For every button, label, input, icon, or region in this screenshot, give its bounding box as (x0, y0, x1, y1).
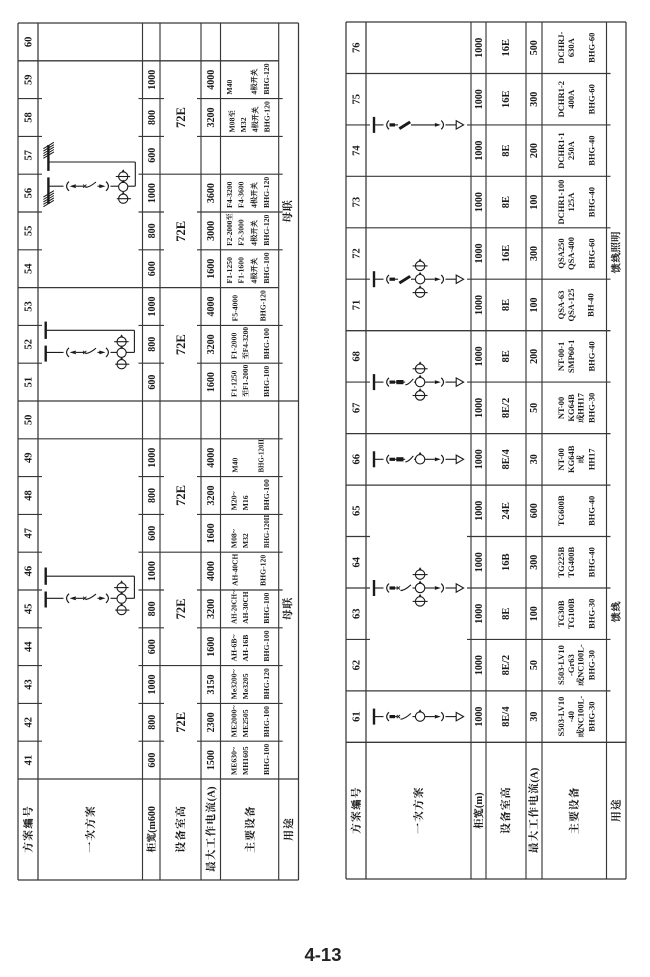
svg-text:QSA-125: QSA-125 (566, 288, 576, 321)
svg-text:100: 100 (529, 606, 540, 621)
svg-text:BHG-60: BHG-60 (587, 84, 597, 114)
svg-text:NT-00-1: NT-00-1 (556, 342, 566, 371)
svg-text:72: 72 (352, 248, 363, 259)
svg-text:16E: 16E (501, 245, 512, 263)
svg-text:BHG-100: BHG-100 (262, 706, 271, 737)
svg-text:MH1605: MH1605 (241, 746, 250, 775)
svg-text:BHG-60: BHG-60 (587, 33, 597, 63)
svg-text:AH-20CH~: AH-20CH~ (231, 590, 238, 624)
svg-text:BHG-120: BHG-120 (262, 63, 271, 94)
svg-text:F5-4000: F5-4000 (231, 295, 240, 322)
svg-text:8E/4: 8E/4 (501, 448, 512, 469)
svg-text:250A: 250A (566, 140, 576, 160)
svg-text:KG64B: KG64B (566, 394, 576, 422)
svg-text:8E: 8E (501, 299, 512, 311)
svg-text:800: 800 (147, 488, 158, 503)
svg-text:4: 4 (250, 242, 259, 246)
svg-text:DCHRJ-: DCHRJ- (556, 31, 566, 63)
svg-text:8E: 8E (501, 350, 512, 362)
svg-text:66: 66 (352, 454, 363, 465)
svg-text:F1-1250: F1-1250 (225, 257, 234, 284)
svg-text:BH-40: BH-40 (586, 293, 596, 317)
svg-text:ME630~: ME630~ (230, 747, 239, 775)
svg-text:1000: 1000 (474, 604, 485, 624)
svg-text:DCHR1-2: DCHR1-2 (556, 81, 566, 117)
svg-text:400A: 400A (566, 89, 576, 109)
svg-text:65: 65 (352, 506, 363, 517)
svg-text:(m600: (m600 (147, 806, 158, 833)
svg-text:3000: 3000 (206, 221, 217, 241)
svg-text:(A): (A) (528, 767, 540, 782)
svg-text:1000: 1000 (474, 346, 485, 366)
svg-text:1000: 1000 (147, 675, 158, 695)
svg-text:63: 63 (352, 608, 363, 619)
svg-text:BHG-30: BHG-30 (587, 650, 597, 680)
svg-text:44: 44 (24, 641, 35, 652)
svg-text:BHG-100: BHG-100 (262, 328, 271, 359)
svg-text:43: 43 (24, 679, 35, 690)
svg-text:1000: 1000 (474, 295, 485, 315)
svg-text:DCHR1-1: DCHR1-1 (556, 132, 566, 168)
svg-text:62: 62 (352, 660, 363, 671)
svg-text:41: 41 (24, 755, 35, 766)
svg-text:8E: 8E (501, 608, 512, 620)
svg-text:4000: 4000 (206, 297, 217, 317)
svg-text:1000: 1000 (147, 70, 158, 90)
svg-text:BHG-40: BHG-40 (587, 496, 597, 526)
svg-text:16E: 16E (501, 90, 512, 108)
svg-text:KG64B: KG64B (566, 445, 576, 473)
svg-text:100: 100 (529, 195, 540, 210)
svg-text:100: 100 (529, 298, 540, 313)
svg-text:45: 45 (24, 604, 35, 615)
svg-text:1500: 1500 (206, 750, 217, 770)
svg-text:Me3200~: Me3200~ (230, 669, 239, 699)
svg-text:BHG-100: BHG-100 (262, 479, 271, 510)
svg-text:BHG-120: BHG-120 (259, 290, 268, 321)
svg-text:F4-3200: F4-3200 (225, 181, 234, 208)
svg-text:HH17: HH17 (576, 392, 586, 414)
svg-text:1600: 1600 (206, 372, 217, 392)
svg-text:16B: 16B (501, 553, 512, 571)
svg-text:600: 600 (147, 753, 158, 768)
svg-text:M16: M16 (241, 495, 250, 510)
svg-text:AH-16B: AH-16B (241, 635, 250, 662)
svg-text:QSA250: QSA250 (556, 238, 566, 268)
svg-text:8E/4: 8E/4 (501, 706, 512, 727)
svg-text:TG600B: TG600B (556, 495, 566, 526)
svg-text:BHG-100: BHG-100 (262, 366, 271, 397)
svg-text:800: 800 (147, 223, 158, 238)
svg-text:8E/2: 8E/2 (501, 398, 512, 418)
svg-text:F1-2000: F1-2000 (230, 333, 239, 360)
svg-text:1000: 1000 (474, 192, 485, 212)
svg-text:64: 64 (352, 556, 363, 567)
svg-text:1000: 1000 (474, 244, 485, 264)
svg-text:600: 600 (147, 639, 158, 654)
svg-text:ME2000~: ME2000~ (230, 705, 239, 737)
svg-text:72E: 72E (174, 334, 188, 355)
svg-text:3200: 3200 (206, 486, 217, 506)
svg-text:BHG-60: BHG-60 (587, 238, 597, 268)
svg-text:BHG-40: BHG-40 (587, 187, 597, 217)
svg-text:68: 68 (352, 351, 363, 362)
svg-text:600: 600 (147, 526, 158, 541)
svg-text:300: 300 (529, 92, 540, 107)
svg-text:DCHR1-100: DCHR1-100 (556, 180, 566, 225)
svg-text:BHG-120II: BHG-120II (258, 439, 265, 473)
svg-text:72E: 72E (174, 107, 188, 128)
svg-text:1000: 1000 (147, 448, 158, 468)
svg-text:TG225B: TG225B (556, 547, 566, 578)
svg-text:48: 48 (24, 490, 35, 501)
svg-text:1000: 1000 (474, 38, 485, 58)
svg-text:3200: 3200 (206, 334, 217, 354)
svg-text:1000: 1000 (474, 552, 485, 572)
svg-text:AH-6B~: AH-6B~ (230, 634, 239, 661)
svg-text:F4-3200: F4-3200 (241, 327, 250, 353)
svg-text:BHG-120: BHG-120 (262, 177, 271, 208)
svg-text:47: 47 (24, 528, 35, 539)
svg-text:TG30B: TG30B (556, 600, 566, 627)
svg-text:4-13: 4-13 (304, 944, 341, 965)
svg-text:BHG-40: BHG-40 (587, 341, 597, 371)
svg-text:57: 57 (24, 150, 35, 161)
svg-text:S503-LV10: S503-LV10 (556, 697, 566, 737)
svg-text:600: 600 (147, 148, 158, 163)
svg-text:800: 800 (147, 601, 158, 616)
svg-text:F4-3600: F4-3600 (237, 181, 246, 208)
svg-text:1000: 1000 (147, 183, 158, 203)
svg-text:30: 30 (529, 454, 540, 464)
svg-text:600: 600 (147, 375, 158, 390)
svg-text:4: 4 (251, 128, 260, 132)
svg-text:71: 71 (352, 300, 363, 311)
svg-text:16E: 16E (501, 39, 512, 57)
svg-text:(A): (A) (205, 786, 217, 801)
svg-text:72E: 72E (174, 221, 188, 242)
svg-text:M20~: M20~ (230, 491, 239, 510)
svg-text:76: 76 (352, 42, 363, 53)
svg-text:F1-1600: F1-1600 (237, 257, 246, 284)
svg-text:1600: 1600 (206, 259, 217, 279)
svg-text:200: 200 (529, 349, 540, 364)
svg-text:4: 4 (250, 280, 259, 284)
svg-text:QSA-400: QSA-400 (566, 237, 576, 270)
svg-text:M32: M32 (239, 117, 248, 132)
svg-text:-40: -40 (566, 711, 576, 722)
svg-text:50: 50 (529, 403, 540, 413)
svg-text:NC100L-: NC100L- (576, 644, 586, 678)
svg-text:F1-2000: F1-2000 (241, 364, 250, 390)
svg-text:52: 52 (24, 339, 35, 350)
svg-text:125A: 125A (566, 192, 576, 212)
svg-text:TG100B: TG100B (566, 598, 576, 629)
svg-text:AH-30CH: AH-30CH (241, 591, 250, 623)
svg-text:2300: 2300 (206, 712, 217, 732)
svg-text:72E: 72E (174, 485, 188, 506)
svg-text:M40: M40 (231, 457, 240, 472)
svg-text:M08~: M08~ (230, 529, 239, 548)
svg-text:51: 51 (24, 377, 35, 388)
svg-text:F2-3000: F2-3000 (237, 219, 246, 246)
svg-text:BHG-100: BHG-100 (262, 252, 271, 283)
svg-text:1000: 1000 (474, 501, 485, 521)
svg-text:4: 4 (250, 204, 259, 208)
svg-text:53: 53 (24, 301, 35, 312)
svg-text:8E: 8E (501, 196, 512, 208)
svg-text:67: 67 (352, 403, 363, 414)
svg-text:1000: 1000 (147, 561, 158, 581)
svg-text:56: 56 (24, 188, 35, 199)
svg-text:BHG-100: BHG-100 (262, 630, 271, 661)
svg-text:4: 4 (250, 91, 259, 95)
svg-text:TG400B: TG400B (566, 547, 576, 578)
svg-text:BHG-120: BHG-120 (259, 555, 268, 586)
svg-text:72E: 72E (174, 598, 188, 619)
svg-text:NC100L-: NC100L- (576, 696, 586, 730)
svg-text:4000: 4000 (206, 70, 217, 90)
svg-text:BHG-120: BHG-120 (263, 101, 272, 132)
svg-text:1000: 1000 (474, 707, 485, 727)
svg-text:49: 49 (24, 452, 35, 463)
svg-text:BHG-30: BHG-30 (587, 599, 597, 629)
svg-text:1600: 1600 (206, 523, 217, 543)
svg-text:8E/2: 8E/2 (501, 655, 512, 675)
svg-text:50: 50 (529, 660, 540, 670)
svg-text:M08: M08 (228, 117, 237, 132)
svg-text:M40: M40 (225, 79, 234, 94)
svg-text:3150: 3150 (206, 675, 217, 695)
svg-text:8E: 8E (501, 144, 512, 156)
svg-text:1600: 1600 (206, 637, 217, 657)
svg-text:F1-1250: F1-1250 (230, 370, 239, 397)
svg-text:3600: 3600 (206, 183, 217, 203)
svg-text:1000: 1000 (474, 141, 485, 161)
svg-text:800: 800 (147, 337, 158, 352)
svg-text:1000: 1000 (474, 89, 485, 109)
svg-text:500: 500 (529, 40, 540, 55)
svg-text:BHG-30: BHG-30 (587, 701, 597, 731)
svg-text:58: 58 (24, 112, 35, 123)
svg-text:-Gr63: -Gr63 (566, 654, 576, 676)
svg-text:BHG-100: BHG-100 (262, 744, 271, 775)
svg-text:630A: 630A (566, 37, 576, 57)
svg-text:4000: 4000 (206, 448, 217, 468)
svg-text:200: 200 (529, 143, 540, 158)
svg-text:55: 55 (24, 226, 35, 237)
svg-text:1000: 1000 (474, 655, 485, 675)
svg-text:BHG-30: BHG-30 (587, 393, 597, 423)
svg-text:24E: 24E (501, 502, 512, 520)
svg-text:BHG-100: BHG-100 (262, 592, 271, 623)
svg-text:61: 61 (352, 711, 363, 722)
svg-text:74: 74 (352, 145, 363, 156)
svg-text:50: 50 (24, 415, 35, 426)
svg-text:(m): (m) (474, 792, 485, 808)
svg-text:1000: 1000 (474, 398, 485, 418)
svg-text:M32: M32 (241, 533, 250, 548)
svg-text:AH-40CH: AH-40CH (231, 553, 240, 585)
svg-text:800: 800 (147, 715, 158, 730)
svg-text:300: 300 (529, 555, 540, 570)
svg-text:BHG-120: BHG-120 (262, 214, 271, 245)
svg-text:S503-LV10: S503-LV10 (556, 645, 566, 685)
svg-text:600: 600 (529, 503, 540, 518)
svg-text:BHG-120: BHG-120 (262, 668, 271, 699)
svg-text:54: 54 (24, 263, 35, 274)
svg-text:30: 30 (529, 712, 540, 722)
svg-text:Me3205: Me3205 (241, 673, 250, 699)
svg-text:300: 300 (529, 246, 540, 261)
svg-text:800: 800 (147, 110, 158, 125)
svg-text:42: 42 (24, 717, 35, 728)
svg-text:4000: 4000 (206, 561, 217, 581)
svg-text:NT-00: NT-00 (556, 448, 566, 470)
svg-text:60: 60 (24, 37, 35, 48)
svg-text:600: 600 (147, 261, 158, 276)
svg-text:73: 73 (352, 197, 363, 208)
svg-text:HH17: HH17 (587, 448, 597, 470)
svg-text:3200: 3200 (206, 108, 217, 128)
svg-text:1000: 1000 (147, 297, 158, 317)
svg-text:3200: 3200 (206, 599, 217, 619)
svg-text:NT-00: NT-00 (556, 397, 566, 419)
svg-text:75: 75 (352, 94, 363, 105)
svg-text:46: 46 (24, 566, 35, 577)
svg-text:59: 59 (24, 74, 35, 85)
svg-text:ME2505: ME2505 (241, 709, 250, 737)
svg-text:BHG-40: BHG-40 (587, 547, 597, 577)
svg-text:BHG-120II: BHG-120II (264, 515, 271, 549)
svg-text:F2-2000: F2-2000 (225, 220, 234, 246)
svg-text:BHG-40: BHG-40 (587, 135, 597, 165)
svg-text:QSA-63: QSA-63 (556, 291, 566, 320)
svg-text:72E: 72E (174, 712, 188, 733)
svg-text:SMP60-1: SMP60-1 (566, 340, 576, 374)
svg-text:1000: 1000 (474, 449, 485, 469)
